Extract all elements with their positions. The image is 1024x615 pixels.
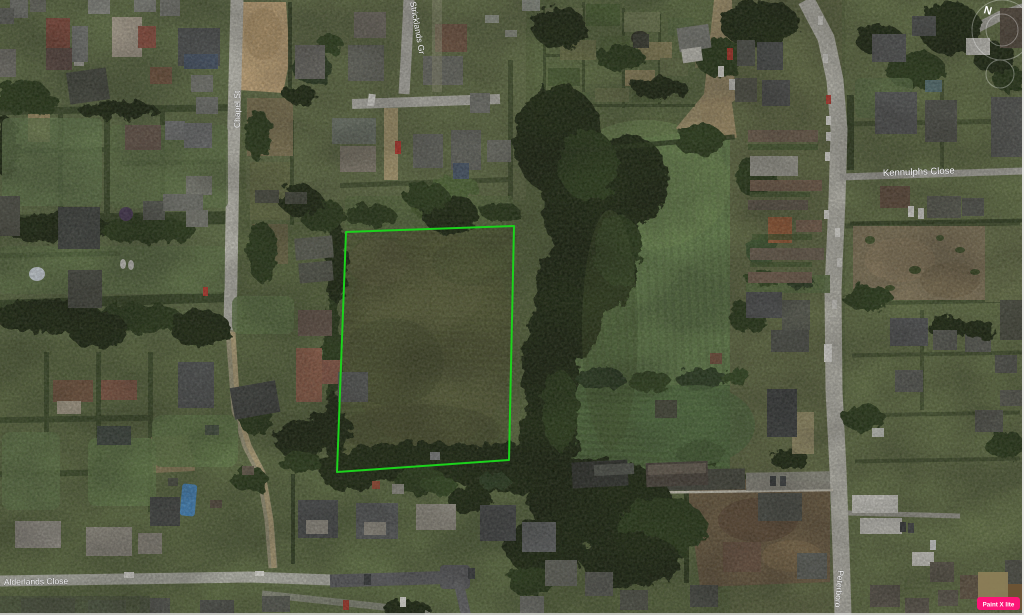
svg-text:Alderlands Close: Alderlands Close xyxy=(4,576,69,587)
svg-text:Paint X lite: Paint X lite xyxy=(983,602,1015,609)
svg-text:Chapel St: Chapel St xyxy=(232,90,242,128)
